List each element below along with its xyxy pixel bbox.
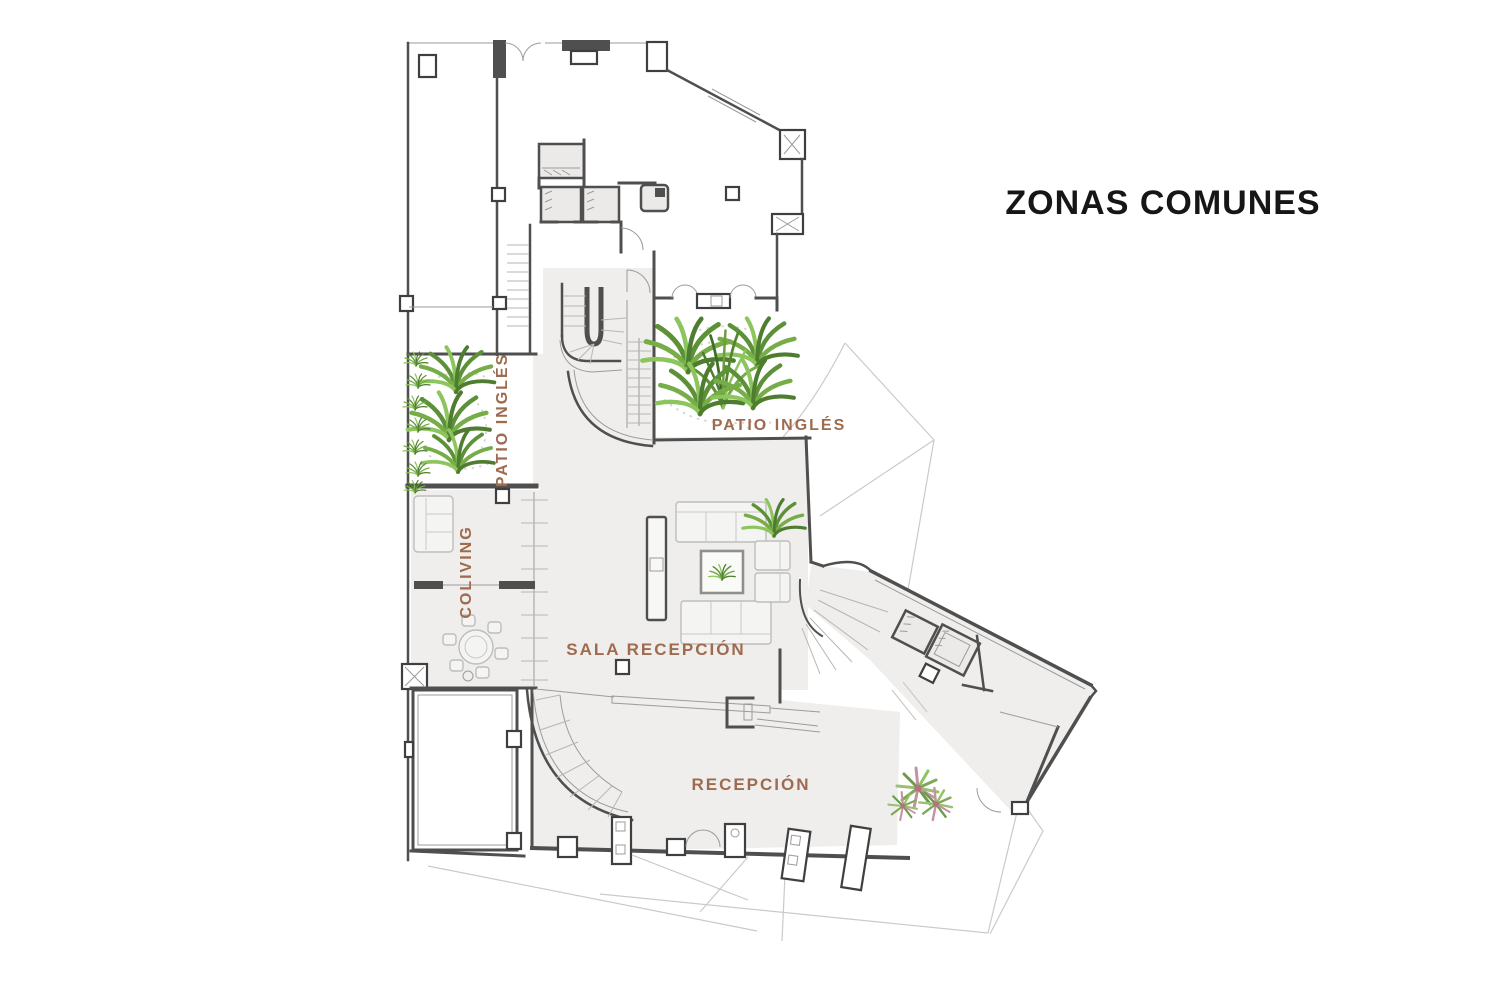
pillar	[612, 817, 631, 864]
chair	[450, 660, 463, 671]
pillar	[725, 824, 745, 857]
facade-diagonal-wall	[667, 70, 785, 133]
coffee-table	[701, 551, 743, 593]
door-arc	[505, 43, 523, 61]
patio-ingles-left	[403, 347, 536, 503]
chair	[495, 648, 508, 659]
sofa-top	[676, 502, 766, 542]
sofa-bottom	[681, 601, 771, 644]
floor-plan-canvas: ZONAS COMUNES PATIO INGLÉS COLIVING PATI…	[0, 0, 1500, 990]
chair	[488, 622, 501, 633]
label-coliving: COLIVING	[458, 525, 475, 618]
page-title: ZONAS COMUNES	[1005, 184, 1320, 222]
armchair	[755, 573, 790, 602]
floor-plan-page: ZONAS COMUNES PATIO INGLÉS COLIVING PATI…	[0, 0, 1500, 990]
elevator-shaft	[583, 187, 619, 222]
label-sala-recepcion: SALA RECEPCIÓN	[566, 640, 745, 659]
label-patio-ingles-left: PATIO INGLÉS	[492, 353, 511, 488]
chair	[476, 667, 489, 678]
elevator-core	[539, 140, 668, 252]
chair	[443, 634, 456, 645]
sofa-coliving	[414, 496, 453, 552]
stairs-corridor	[507, 225, 530, 354]
label-patio-ingles-top: PATIO INGLÉS	[712, 415, 847, 434]
reception-desk	[647, 517, 666, 620]
storage-room-bottom-left	[402, 664, 536, 856]
label-recepcion: RECEPCIÓN	[691, 775, 810, 794]
elevator-shaft	[541, 187, 581, 222]
column-block	[419, 55, 436, 77]
plant-cluster-patio-top	[642, 318, 797, 427]
armchair	[755, 541, 790, 570]
